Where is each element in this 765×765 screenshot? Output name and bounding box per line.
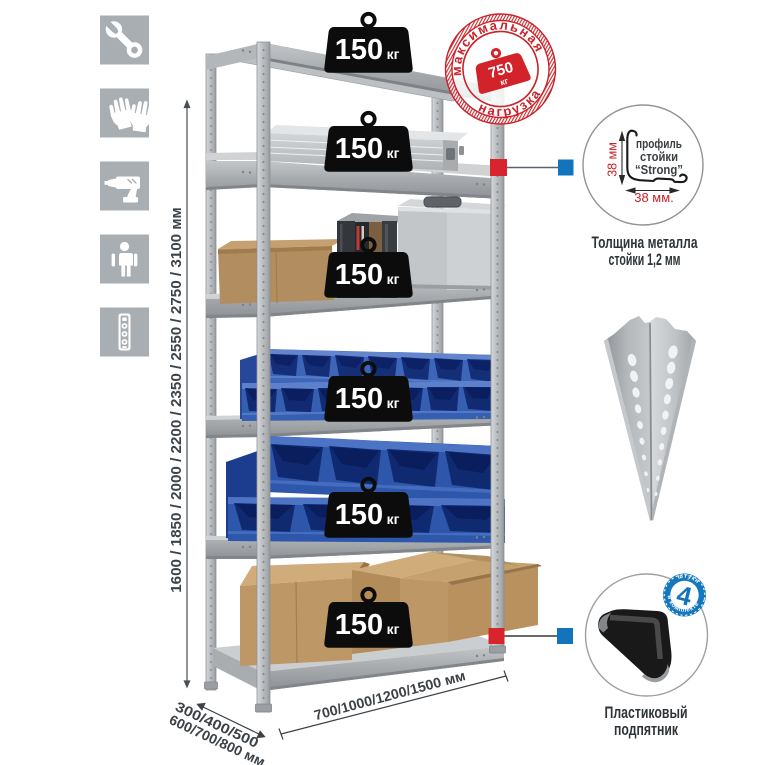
svg-text:150: 150 bbox=[335, 499, 383, 531]
svg-text:Пластиковый: Пластиковый bbox=[605, 704, 688, 722]
svg-text:кг: кг bbox=[387, 395, 400, 411]
svg-text:Толщина металла: Толщина металла bbox=[592, 234, 699, 252]
svg-text:150: 150 bbox=[335, 133, 383, 165]
svg-text:150: 150 bbox=[335, 259, 383, 291]
svg-text:стойки 1,2 мм: стойки 1,2 мм bbox=[609, 251, 681, 269]
svg-text:кг: кг bbox=[387, 511, 400, 527]
svg-text:150: 150 bbox=[335, 34, 383, 66]
svg-text:кг: кг bbox=[387, 46, 400, 62]
svg-text:кг: кг bbox=[387, 621, 400, 637]
svg-text:38 мм: 38 мм bbox=[606, 142, 620, 177]
svg-text:подпятник: подпятник bbox=[614, 721, 679, 739]
svg-text:кг: кг bbox=[387, 271, 400, 287]
svg-text:“Strong”: “Strong” bbox=[635, 162, 683, 177]
svg-text:38 мм.: 38 мм. bbox=[634, 190, 674, 205]
svg-text:1600 / 1850 / 2000 / 2200 / 23: 1600 / 1850 / 2000 / 2200 / 2350 / 2550 … bbox=[168, 207, 185, 593]
svg-text:кг: кг bbox=[387, 145, 400, 161]
svg-text:150: 150 bbox=[335, 609, 383, 641]
svg-text:150: 150 bbox=[335, 383, 383, 415]
